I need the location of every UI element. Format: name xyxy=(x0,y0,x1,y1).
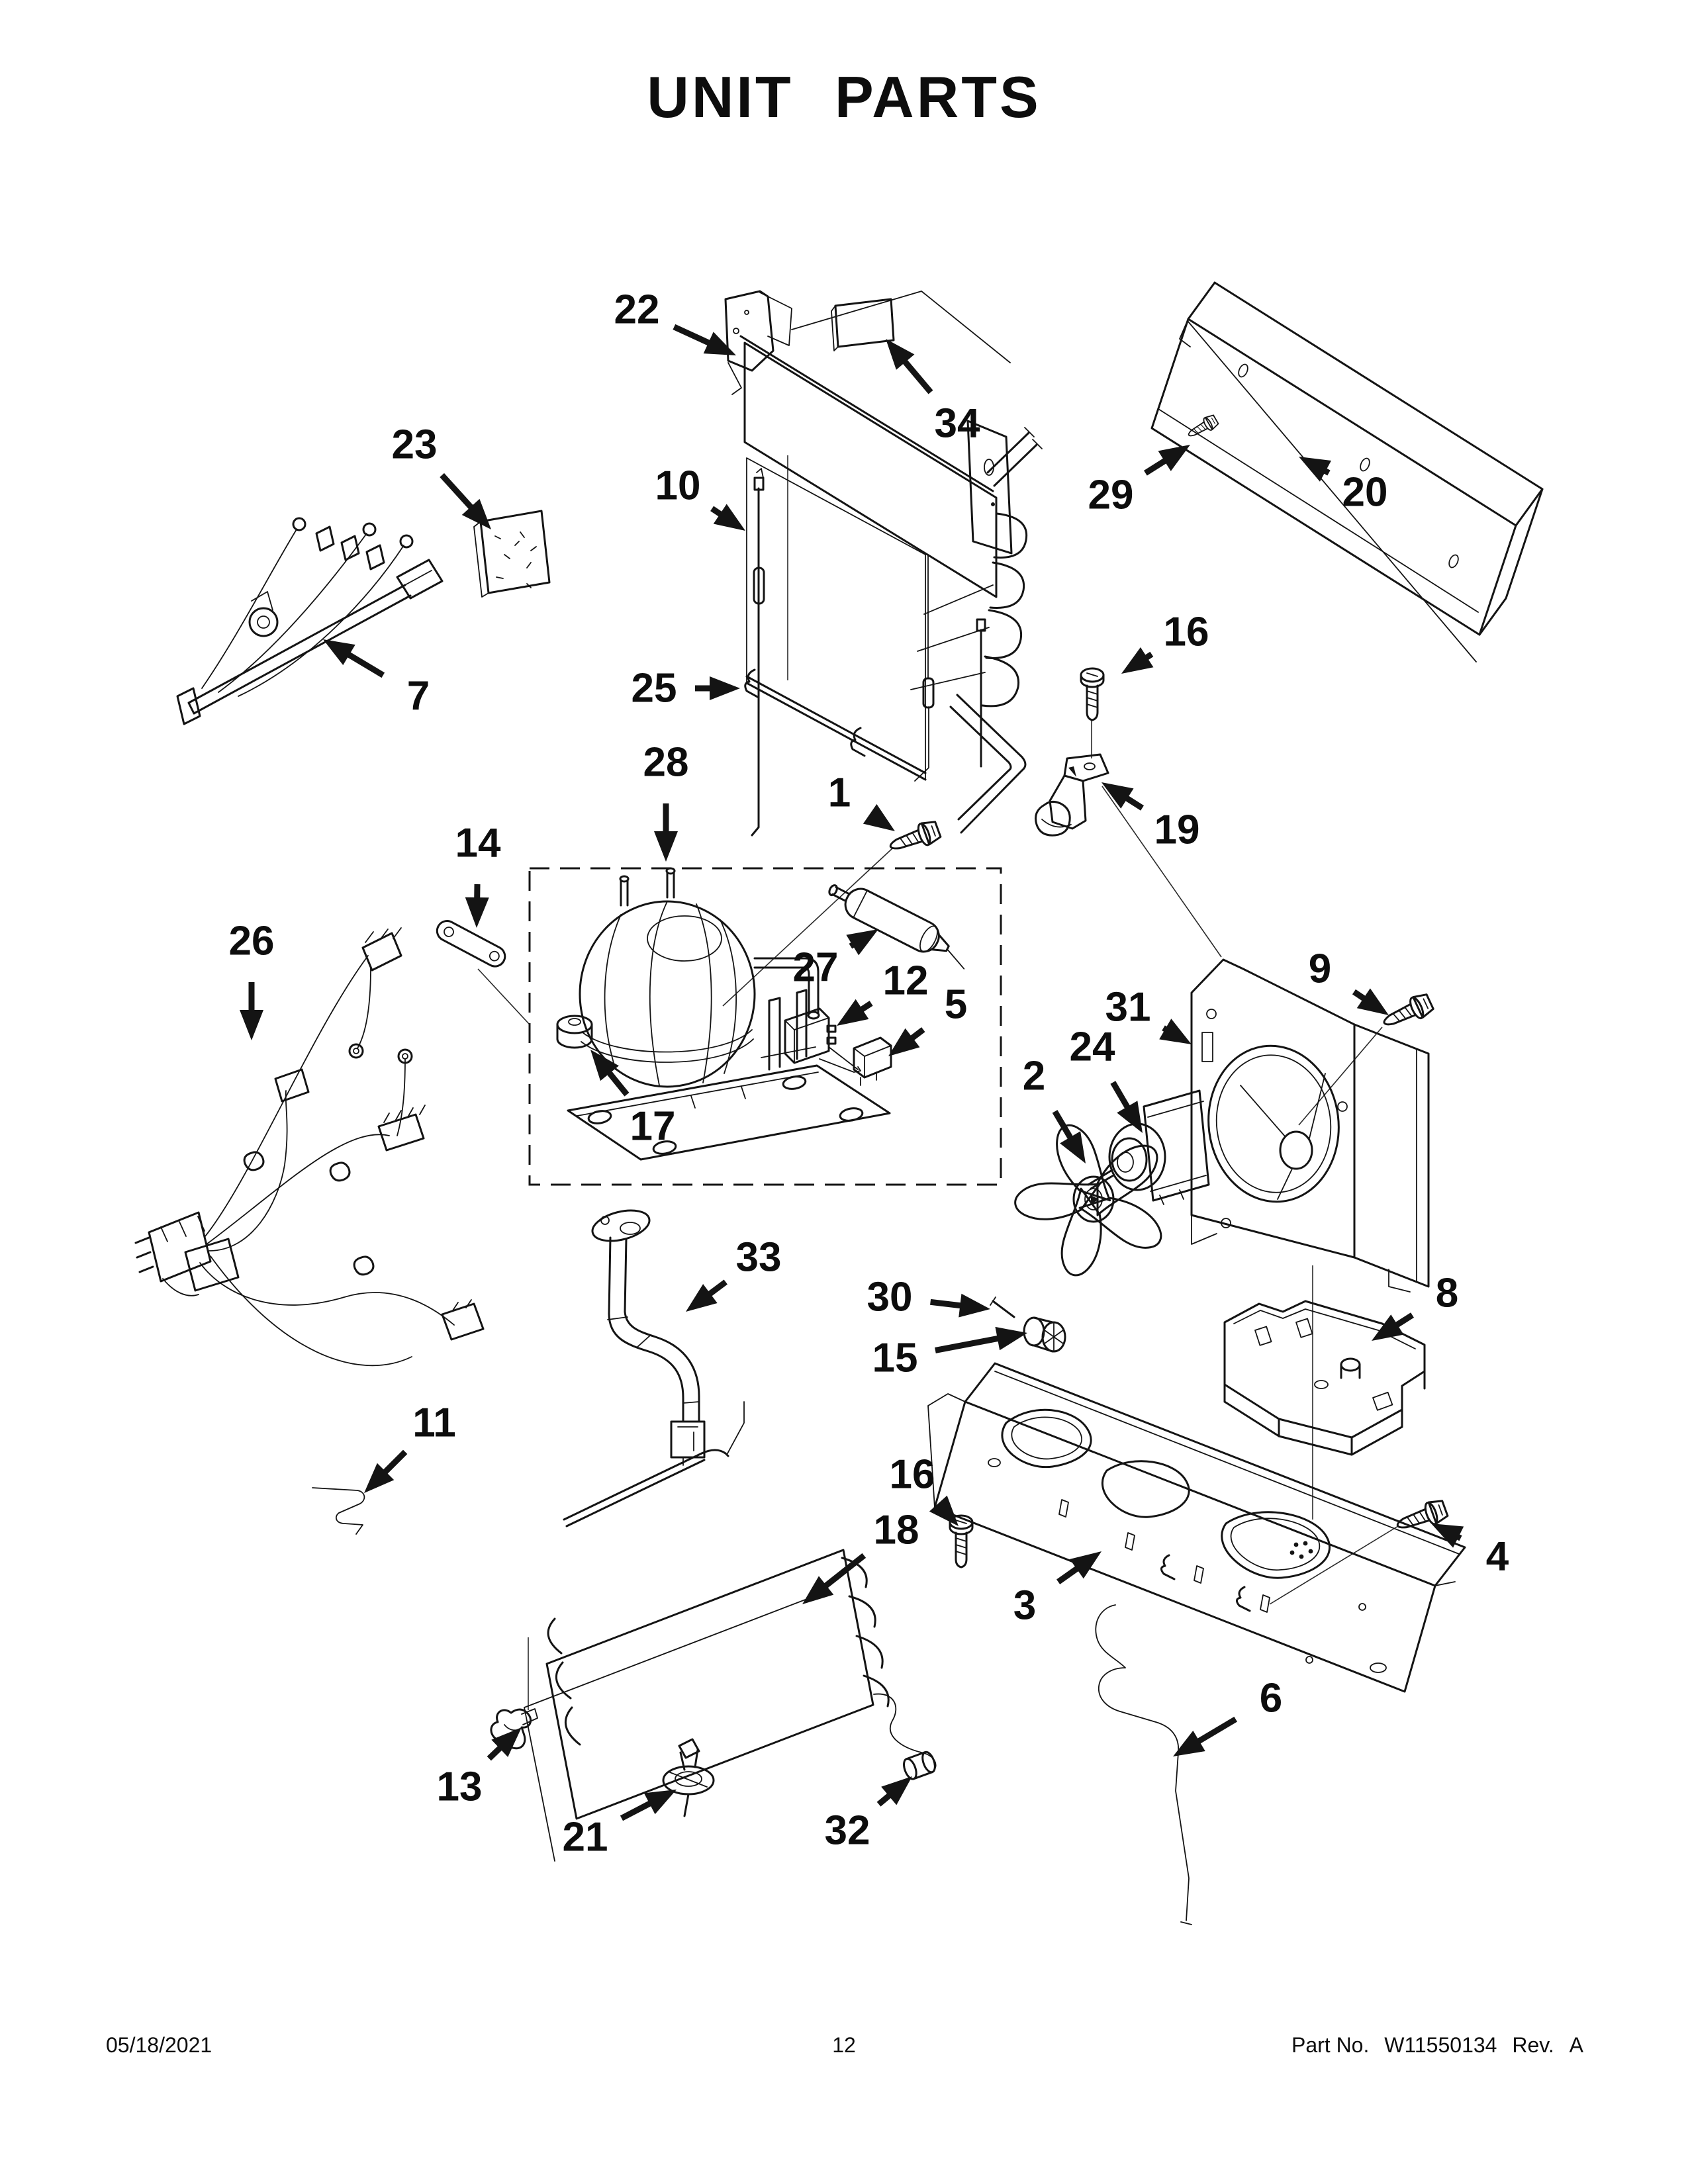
callout-number: 12 xyxy=(883,958,929,1004)
callout-31: 31 xyxy=(1105,985,1192,1045)
callout-6: 6 xyxy=(1173,1676,1282,1757)
callout-23: 23 xyxy=(392,422,491,530)
callout-arrow-shaft xyxy=(1145,459,1168,473)
callout-4: 4 xyxy=(1431,1524,1509,1580)
callout-arrow-head xyxy=(846,929,878,955)
footer-rev: A xyxy=(1570,2033,1583,2057)
callout-arrow-head xyxy=(704,332,736,355)
callout-29: 29 xyxy=(1088,445,1190,518)
callout-arrow-head xyxy=(1372,1314,1404,1341)
callout-arrow-head xyxy=(837,999,868,1026)
callout-11: 11 xyxy=(364,1400,456,1494)
callout-number: 27 xyxy=(793,945,839,991)
part-11-wire-clip xyxy=(312,1488,364,1534)
callout-arrow-head xyxy=(863,804,895,831)
callout-arrow-head xyxy=(654,831,678,862)
callout-16: 16 xyxy=(1121,610,1209,674)
callout-arrow-head xyxy=(644,1790,677,1814)
callout-number: 8 xyxy=(1436,1271,1458,1316)
callout-33: 33 xyxy=(686,1235,781,1312)
callout-13: 13 xyxy=(437,1727,522,1810)
part-14-link-strap xyxy=(434,917,508,970)
callout-number: 15 xyxy=(872,1336,918,1381)
callout-number: 33 xyxy=(736,1235,782,1281)
callout-arrow-shaft xyxy=(674,327,712,344)
callout-number: 26 xyxy=(229,919,275,964)
part-26-wiring-harness xyxy=(136,928,483,1365)
callout-number: 1 xyxy=(828,770,851,816)
callout-15: 15 xyxy=(872,1327,1027,1381)
callout-number: 17 xyxy=(630,1104,676,1150)
part-21-grommet-foot xyxy=(663,1739,714,1816)
callout-26: 26 xyxy=(229,919,275,1041)
footer-part-info: Part No. W11550134 Rev. A xyxy=(1282,2033,1583,2058)
callout-number: 5 xyxy=(945,982,967,1028)
callout-number: 18 xyxy=(874,1508,919,1553)
part-32-spacer xyxy=(902,1751,937,1781)
part-6-support-wire xyxy=(1096,1605,1192,1925)
callout-arrow-head xyxy=(1117,1101,1143,1133)
callout-arrow-head xyxy=(465,897,489,928)
callout-number: 13 xyxy=(437,1764,483,1810)
footer-part-number: W11550134 xyxy=(1384,2033,1497,2057)
callout-arrow-head xyxy=(1060,1131,1086,1163)
callout-number: 24 xyxy=(1070,1024,1115,1070)
part-10-temperature-sensor xyxy=(752,469,764,835)
callout-arrow-shaft xyxy=(935,1338,1002,1350)
callout-25: 25 xyxy=(632,666,740,711)
callout-number: 19 xyxy=(1154,807,1200,853)
callout-arrow-head xyxy=(1357,988,1389,1015)
callout-arrow-head xyxy=(710,676,740,700)
part-10b-sensor-wire xyxy=(977,619,985,766)
footer-part-label: Part No. xyxy=(1291,2033,1369,2057)
callout-number: 11 xyxy=(412,1400,456,1446)
part-25-evaporator-shell xyxy=(745,458,933,781)
callout-number: 31 xyxy=(1105,985,1151,1030)
callout-number: 2 xyxy=(1023,1054,1045,1099)
callout-number: 22 xyxy=(614,287,660,333)
part-18-condenser xyxy=(524,1402,936,1861)
callout-arrow-shaft xyxy=(903,359,931,392)
callout-number: 3 xyxy=(1013,1583,1036,1629)
callouts-layer: 2234232920101625728119142693127122425173… xyxy=(229,287,1509,1860)
callout-21: 21 xyxy=(563,1790,677,1860)
service-manual-page: UNIT PARTS xyxy=(0,0,1688,2184)
callout-arrow-head xyxy=(323,639,355,665)
callout-number: 14 xyxy=(455,821,501,866)
callout-number: 25 xyxy=(632,666,677,711)
callout-arrow-head xyxy=(240,1010,263,1040)
parts-diagram: 2234232920101625728119142693127122425173… xyxy=(0,0,1688,2184)
callout-number: 7 xyxy=(407,674,430,719)
part-28-compressor xyxy=(568,868,890,1160)
callout-number: 23 xyxy=(392,422,438,468)
callout-arrow-head xyxy=(959,1294,990,1318)
callout-arrow-shaft xyxy=(1058,1567,1080,1582)
callout-number: 6 xyxy=(1260,1676,1282,1721)
callout-34: 34 xyxy=(886,339,980,447)
callout-number: 16 xyxy=(890,1452,935,1498)
callout-number: 29 xyxy=(1088,473,1134,518)
part-31-fan-shroud xyxy=(1192,960,1429,1292)
callout-24: 24 xyxy=(1070,1024,1143,1134)
callout-12: 12 xyxy=(837,958,928,1026)
callout-arrow-head xyxy=(1102,782,1134,809)
callout-7: 7 xyxy=(323,639,430,719)
callout-number: 16 xyxy=(1164,610,1209,655)
callout-number: 30 xyxy=(867,1275,913,1320)
footer-rev-label: Rev. xyxy=(1512,2033,1554,2057)
part-5-capacitor xyxy=(854,1038,891,1085)
part-3-base-pan xyxy=(928,1363,1465,1692)
part-15-roller xyxy=(1024,1318,1065,1351)
callout-28: 28 xyxy=(643,740,689,862)
callout-arrow-shaft xyxy=(823,1555,864,1588)
callout-arrow-head xyxy=(1070,1551,1102,1578)
callout-arrow-head xyxy=(1121,647,1153,674)
callout-arrow-head xyxy=(1158,445,1190,471)
callout-arrow-head xyxy=(1299,457,1331,482)
part-1-screw xyxy=(887,819,942,857)
callout-number: 4 xyxy=(1486,1534,1509,1580)
callout-arrow-shaft xyxy=(1196,1719,1235,1743)
callout-9: 9 xyxy=(1309,946,1389,1016)
callout-32: 32 xyxy=(825,1776,912,1854)
callout-19: 19 xyxy=(1102,782,1199,853)
callout-27: 27 xyxy=(793,929,878,991)
callout-number: 9 xyxy=(1309,946,1331,992)
callout-10: 10 xyxy=(655,463,745,531)
part-7-heater-rail-assembly xyxy=(177,518,442,724)
callout-22: 22 xyxy=(614,287,736,356)
callout-arrow-shaft xyxy=(1113,1083,1129,1111)
callout-number: 20 xyxy=(1342,470,1388,516)
callout-arrow-head xyxy=(714,504,745,531)
callout-arrow-shaft xyxy=(383,1452,405,1475)
callout-1: 1 xyxy=(828,770,895,832)
callout-number: 32 xyxy=(825,1808,870,1854)
part-33-drain-tube xyxy=(589,1205,704,1465)
callout-number: 28 xyxy=(643,740,689,786)
callout-number: 21 xyxy=(563,1815,608,1860)
callout-18: 18 xyxy=(802,1508,919,1605)
part-16-screw-top xyxy=(1081,668,1103,720)
callout-arrow-shaft xyxy=(931,1302,964,1306)
part-19-tube-clamp xyxy=(1036,754,1109,835)
callout-arrow-shaft xyxy=(442,475,474,510)
callout-3: 3 xyxy=(1013,1551,1102,1629)
callout-number: 34 xyxy=(935,401,980,447)
callout-number: 10 xyxy=(655,463,701,509)
callout-arrow-head xyxy=(995,1327,1027,1350)
part-2-fan-blade xyxy=(1011,1122,1164,1280)
callout-30: 30 xyxy=(867,1275,990,1320)
callout-14: 14 xyxy=(455,821,501,929)
callout-arrow-shaft xyxy=(346,653,383,676)
callout-arrow-head xyxy=(1159,1019,1192,1044)
part-9-shroud-screw xyxy=(1380,991,1434,1033)
callout-arrow-shaft xyxy=(622,1802,653,1819)
part-30-pin xyxy=(990,1297,1014,1317)
